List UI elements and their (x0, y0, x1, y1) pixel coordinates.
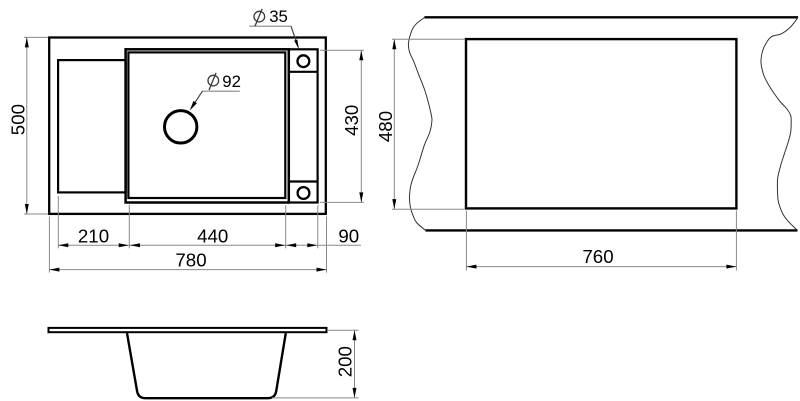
svg-text:92: 92 (222, 72, 241, 91)
svg-text:780: 780 (175, 250, 206, 271)
svg-text:440: 440 (197, 226, 228, 247)
svg-text:430: 430 (341, 105, 362, 136)
svg-text:200: 200 (335, 346, 356, 377)
svg-text:90: 90 (338, 226, 359, 247)
svg-text:500: 500 (8, 104, 29, 135)
svg-text:210: 210 (78, 226, 109, 247)
svg-text:760: 760 (582, 246, 613, 267)
svg-text:480: 480 (375, 111, 396, 142)
svg-text:35: 35 (269, 7, 288, 26)
